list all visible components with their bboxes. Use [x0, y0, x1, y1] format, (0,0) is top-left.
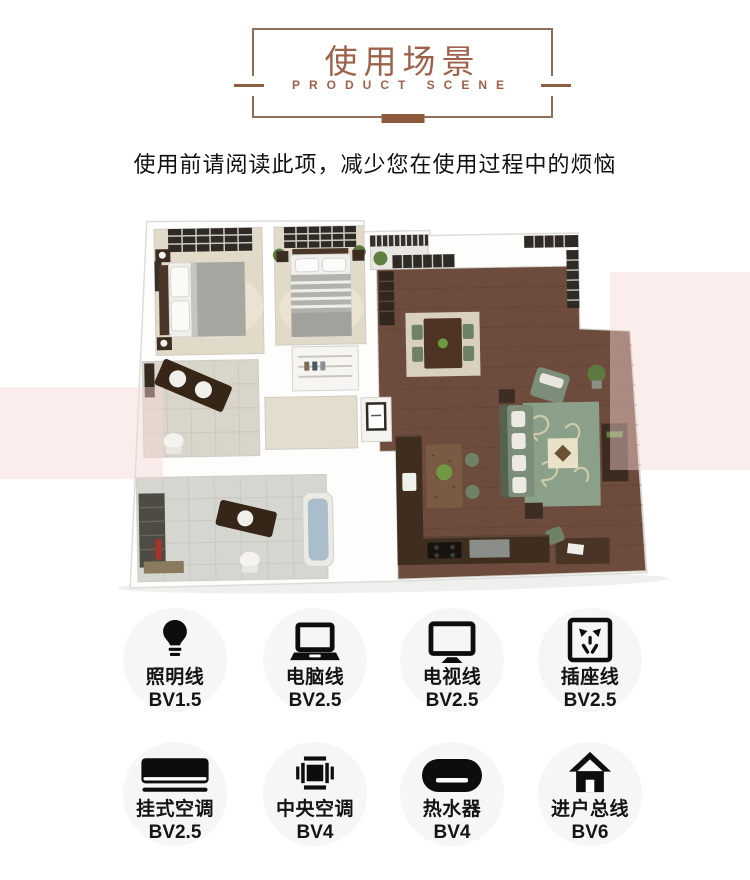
wire-name: 电视线: [387, 666, 517, 689]
wire-spec: BV2.5: [110, 821, 240, 844]
section-title: 使用场景: [254, 35, 551, 83]
section-title-box: 使用场景 PRODUCT SCENE: [252, 28, 553, 118]
floor-plan-svg: [95, 205, 715, 595]
wire-name: 挂式空调: [110, 798, 240, 821]
wire-name: 照明线: [110, 666, 240, 689]
wire-item-computer: 电脑线 BV2.5: [250, 612, 380, 712]
decor-dash-right: [541, 84, 571, 87]
decor-accent-bar: [381, 114, 424, 123]
light-bulb-icon: [110, 612, 240, 664]
central-air-conditioner-icon: [250, 746, 380, 796]
wire-spec: BV6: [525, 821, 655, 844]
wire-name: 电脑线: [250, 666, 380, 689]
power-socket-icon: [525, 612, 655, 664]
wire-name: 热水器: [387, 798, 517, 821]
house-icon: [525, 746, 655, 796]
wire-item-wall-ac: 挂式空调 BV2.5: [110, 746, 240, 844]
intro-text: 使用前请阅读此项，减少您在使用过程中的烦恼: [0, 147, 750, 179]
wire-item-central-ac: 中央空调 BV4: [250, 746, 380, 844]
decor-dash-left: [234, 84, 264, 87]
section-subtitle-en: PRODUCT SCENE: [254, 78, 551, 92]
wire-spec: BV4: [250, 821, 380, 844]
wire-item-tv: 电视线 BV2.5: [387, 612, 517, 712]
wire-spec: BV2.5: [525, 689, 655, 712]
wire-name: 插座线: [525, 666, 655, 689]
wire-item-socket: 插座线 BV2.5: [525, 612, 655, 712]
wire-item-main-line: 进户总线 BV6: [525, 746, 655, 844]
wire-spec: BV4: [387, 821, 517, 844]
wire-name: 中央空调: [250, 798, 380, 821]
wire-spec: BV2.5: [250, 689, 380, 712]
wire-name: 进户总线: [525, 798, 655, 821]
wire-spec: BV1.5: [110, 689, 240, 712]
wire-item-lighting: 照明线 BV1.5: [110, 612, 240, 712]
floor-plan-image: [95, 205, 715, 595]
water-heater-icon: [387, 746, 517, 796]
wire-spec: BV2.5: [387, 689, 517, 712]
product-scene-page: 使用场景 PRODUCT SCENE 使用前请阅读此项，减少您在使用过程中的烦恼: [0, 0, 750, 880]
tv-icon: [387, 612, 517, 664]
wire-item-water-heater: 热水器 BV4: [387, 746, 517, 844]
wall-air-conditioner-icon: [110, 746, 240, 796]
laptop-icon: [250, 612, 380, 664]
